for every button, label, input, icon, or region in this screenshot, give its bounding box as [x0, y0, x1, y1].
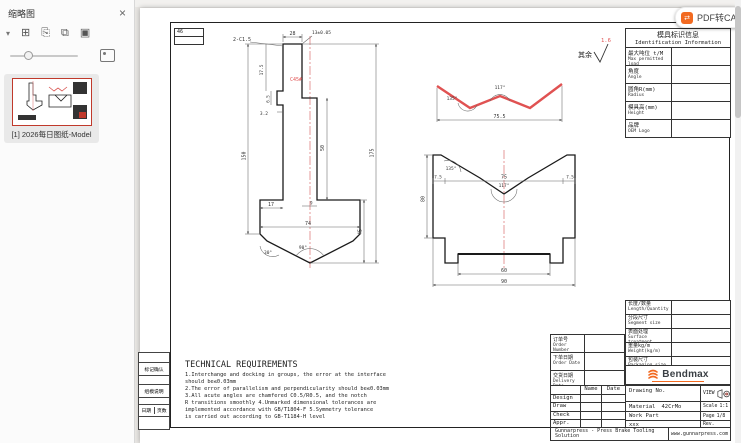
- table-row: 下单日期Order Date: [551, 353, 624, 371]
- material-cell: Material 42CrMo: [626, 402, 700, 412]
- work-part-cell: Work Part: [626, 412, 700, 421]
- margin-row-2: 组模说明: [139, 385, 169, 398]
- table-row: 模具高(mm)Height: [626, 102, 730, 120]
- corner-note: 46: [175, 29, 203, 37]
- margin-row-1: 标记确认: [139, 363, 169, 376]
- pdf-to-cad-button[interactable]: ⇄ PDF转CAD: [675, 7, 741, 28]
- vertical-scrollbar[interactable]: [735, 0, 741, 443]
- pdf-viewer-window: 缩略图 × ▾ ⊞ ⎘ ⧉ ▣: [0, 0, 741, 443]
- table-row: 最大吨位 t/MMax permitted load: [626, 48, 730, 66]
- margin-row-3b: 页数: [155, 407, 170, 414]
- sidebar-toolbar: ▾ ⊞ ⎘ ⧉ ▣: [0, 26, 134, 45]
- page-value: 1/8: [717, 414, 726, 419]
- drawing-no-cell: Drawing No.: [626, 386, 700, 402]
- title-block: NameDate Design Draw Check Appr. Drawing…: [550, 385, 731, 428]
- rev-cell: Rev.: [701, 421, 730, 428]
- thumbnail-mini-drawing: [13, 79, 91, 125]
- scale-cell: Scale1:1: [701, 402, 730, 412]
- duplicate-page-icon[interactable]: ⧉: [61, 28, 69, 39]
- copy-page-icon[interactable]: ⎘: [41, 28, 50, 39]
- close-icon[interactable]: ×: [119, 7, 126, 19]
- thumbnail-sidebar: 缩略图 × ▾ ⊞ ⎘ ⧉ ▣: [0, 0, 135, 443]
- projection-symbol-icon: [717, 388, 730, 400]
- sidebar-header: 缩略图 ×: [0, 0, 134, 26]
- table-row: 分段尺寸Segment size: [626, 315, 730, 329]
- thumbnail-size-row: [0, 45, 134, 64]
- tech-body: 1.Interchange and docking in groups, the…: [185, 372, 400, 421]
- signature-table: NameDate Design Draw Check Appr.: [551, 386, 626, 427]
- sheet-corner-box: 46: [174, 28, 204, 45]
- id-table-title-zh: 模具标识信息: [626, 30, 730, 40]
- note-cell: xxx: [626, 421, 700, 428]
- title-block-right: VIEW Scale1:1 Page1/8 Rev: [701, 386, 730, 427]
- title-block-center: Drawing No. Material 42CrMo Work Part xx…: [626, 386, 701, 427]
- table-row: 长度/数量Length/Quantity: [626, 301, 730, 315]
- order-table: 订单号Order Number 下单日期Order Date 交货日期Deliv…: [550, 334, 625, 389]
- table-row: 角度Angle: [626, 66, 730, 84]
- image-size-icon: [100, 49, 115, 62]
- footer-company: Gunnarpress - Press Brake Tooling Soluti…: [551, 428, 669, 440]
- page-thumbnail-image[interactable]: [12, 78, 92, 126]
- table-row: 品牌OEM Logo: [626, 120, 730, 137]
- margin-revision-table: 标记确认 组模说明 日期 页数: [138, 352, 170, 430]
- spec-table: 长度/数量Length/Quantity 分段尺寸Segment size 表面…: [625, 300, 731, 371]
- table-row: 重量kg/mWeight(kg/m): [626, 343, 730, 357]
- material-value: 42CrMo: [662, 404, 682, 410]
- chevron-down-icon[interactable]: ▾: [6, 30, 10, 38]
- table-row: 表面处理Surface treatment: [626, 329, 730, 343]
- thumbnail-size-slider[interactable]: [10, 55, 78, 57]
- pdf-to-cad-icon: ⇄: [681, 12, 693, 24]
- table-row: 圆角R(mm)Radius: [626, 84, 730, 102]
- margin-row-3a: 日期: [139, 407, 155, 414]
- title-block-footer: Gunnarpress - Press Brake Tooling Soluti…: [550, 428, 731, 441]
- document-viewport: 46 标记确认 组模说明 日期 页数 模具标识信息 Identificat: [135, 0, 741, 443]
- slider-knob[interactable]: [24, 51, 33, 60]
- view-cell: VIEW: [701, 386, 730, 402]
- id-table-title-en: Identification Information: [626, 40, 730, 46]
- sidebar-title: 缩略图: [8, 7, 35, 20]
- tech-title: TECHNICAL REQUIREMENTS: [185, 360, 400, 370]
- scrollbar-thumb[interactable]: [735, 6, 741, 118]
- insert-page-icon[interactable]: ⊞: [21, 28, 30, 39]
- table-row: 订单号Order Number: [551, 335, 624, 353]
- page-cell: Page1/8: [701, 412, 730, 421]
- bendmax-logo-icon: [647, 368, 659, 380]
- page-thumbnail[interactable]: [1] 2026每日图纸-Model: [4, 74, 99, 143]
- identification-table: 模具标识信息 Identification Information 最大吨位 t…: [625, 28, 731, 138]
- drawing-sheet: 46 标记确认 组模说明 日期 页数 模具标识信息 Identificat: [140, 8, 736, 443]
- technical-requirements: TECHNICAL REQUIREMENTS 1.Interchange and…: [185, 360, 400, 421]
- footer-url: www.gunnarpress.com: [669, 431, 730, 437]
- page-thumbnail-label: [1] 2026每日图纸-Model: [4, 129, 99, 140]
- brand-cell: Bendmax: [625, 365, 731, 385]
- extract-page-icon[interactable]: ▣: [80, 28, 90, 39]
- brand-tagline-rule: [652, 381, 704, 382]
- scale-value: 1:1: [719, 404, 728, 409]
- brand-name: Bendmax: [662, 369, 708, 380]
